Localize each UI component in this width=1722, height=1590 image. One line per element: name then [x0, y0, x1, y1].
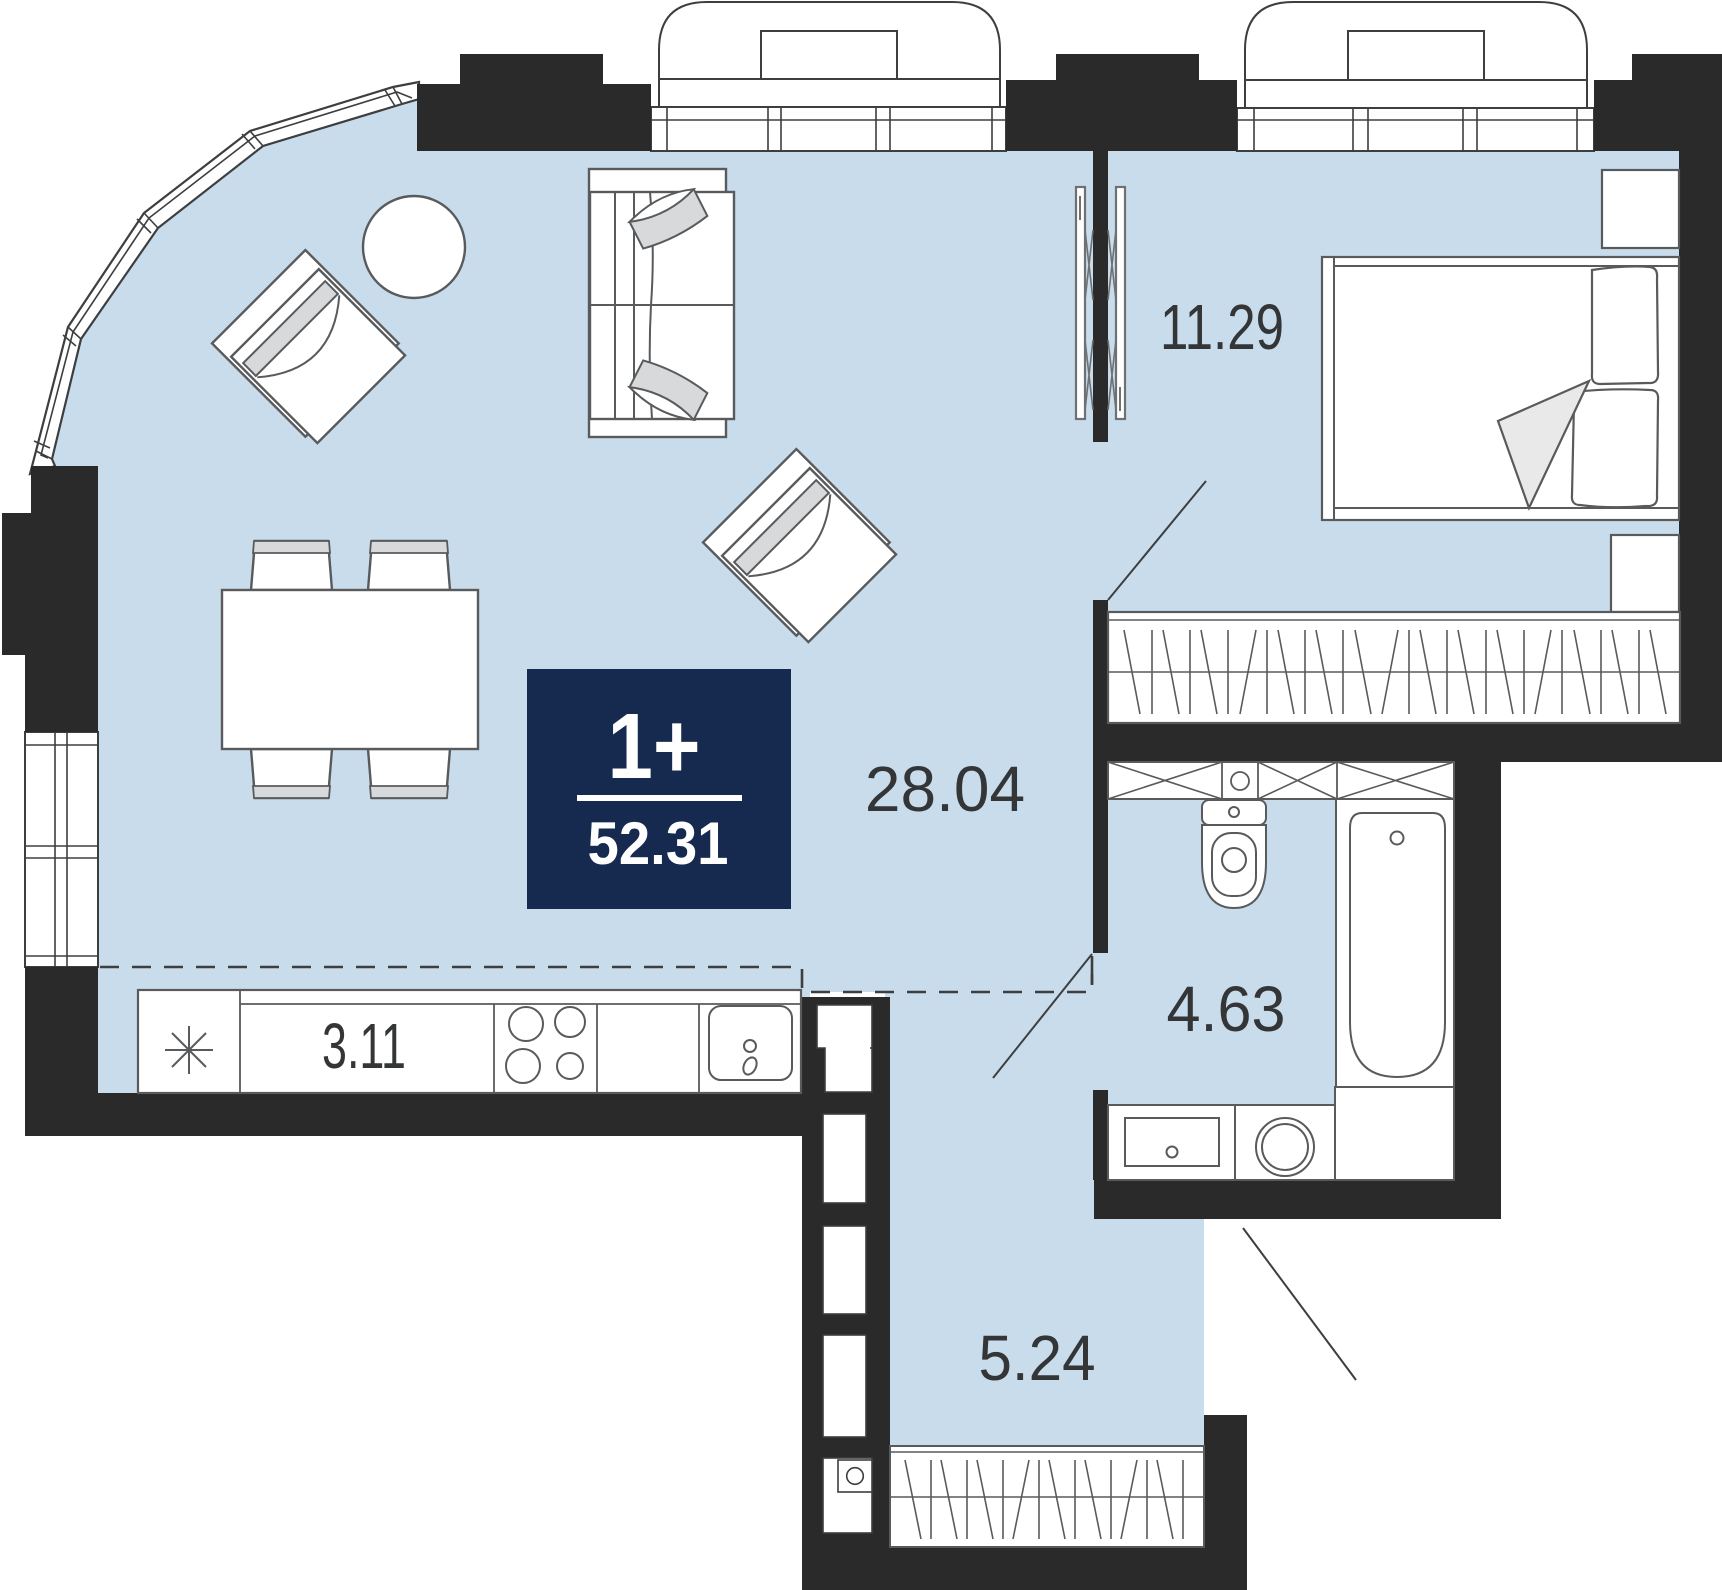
svg-text:52.31: 52.31	[588, 810, 729, 877]
svg-text:4.63: 4.63	[1167, 973, 1286, 1045]
svg-text:11.29: 11.29	[1160, 291, 1284, 363]
svg-text:1+: 1+	[608, 694, 701, 798]
svg-text:28.04: 28.04	[865, 753, 1025, 825]
svg-text:3.11: 3.11	[322, 1010, 406, 1082]
svg-text:5.24: 5.24	[979, 1322, 1096, 1394]
